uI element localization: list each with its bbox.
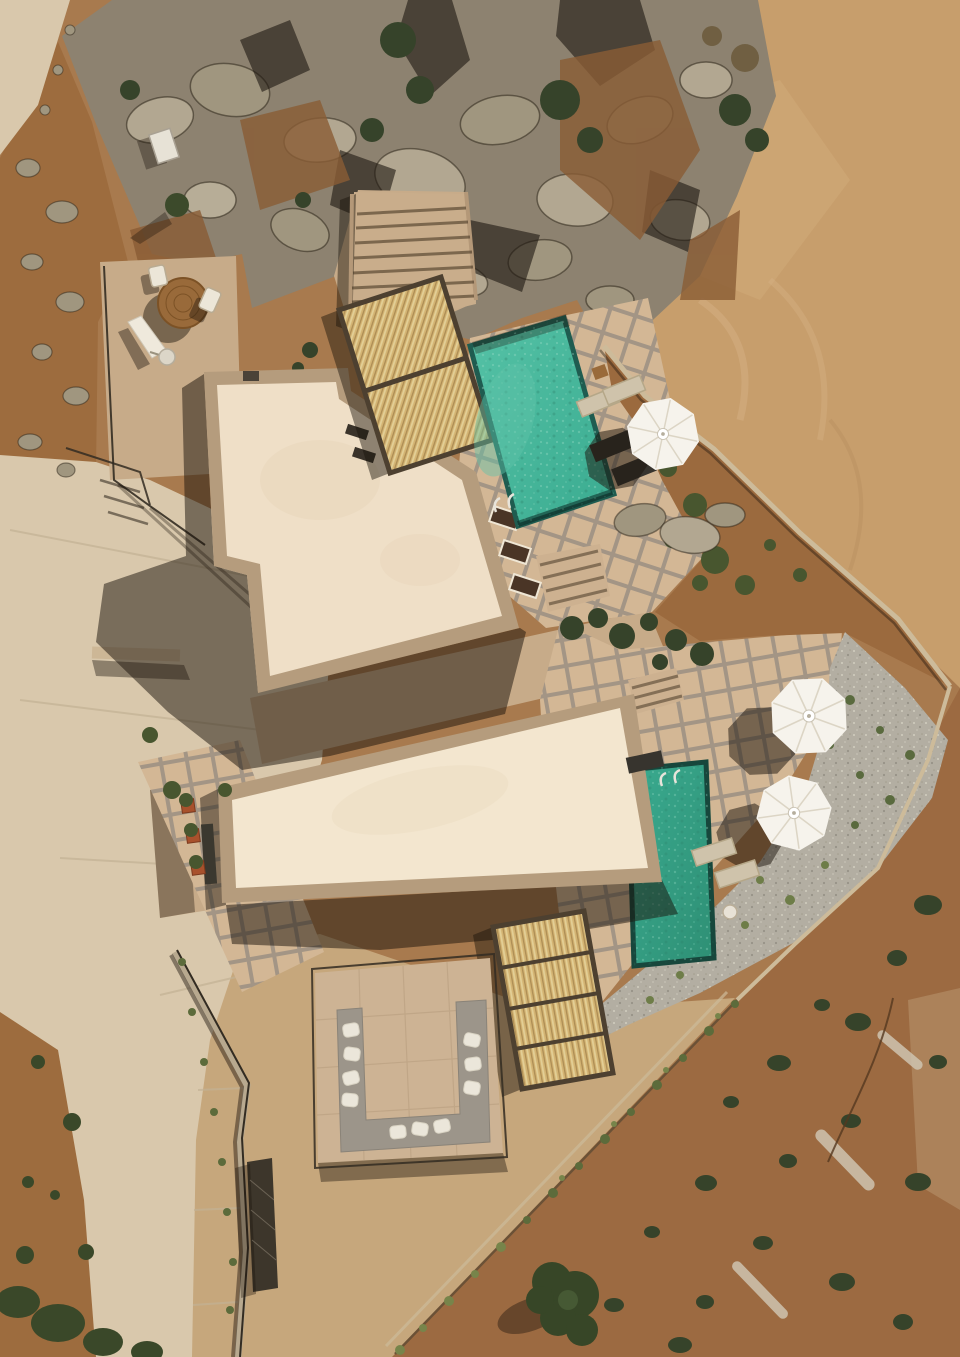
small-tree <box>165 193 189 217</box>
small-table <box>723 905 737 919</box>
aerial-photo <box>0 0 960 1357</box>
roof-vent <box>243 371 259 381</box>
lounge-terrace <box>312 954 508 1182</box>
umbrella-base <box>159 349 175 365</box>
